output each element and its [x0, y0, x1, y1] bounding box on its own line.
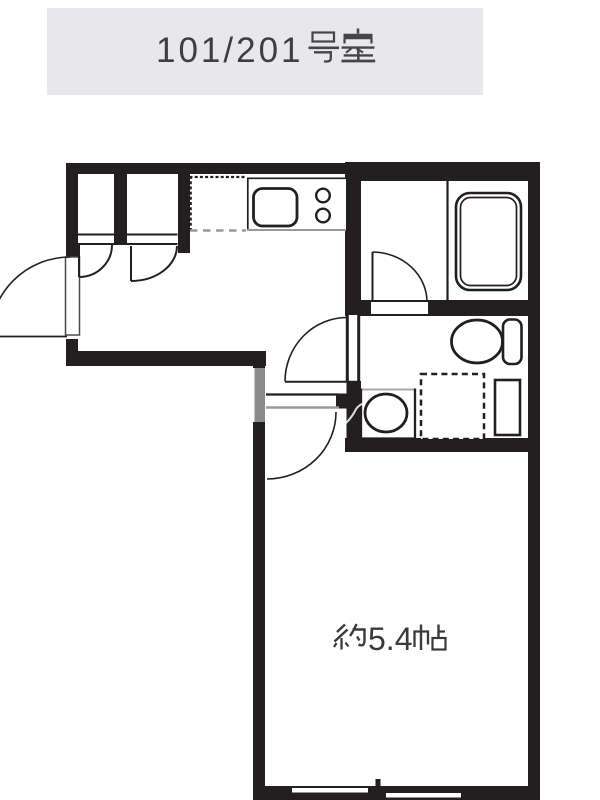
svg-text:5.4: 5.4 [368, 621, 412, 657]
svg-text:101/201: 101/201 [156, 31, 304, 70]
